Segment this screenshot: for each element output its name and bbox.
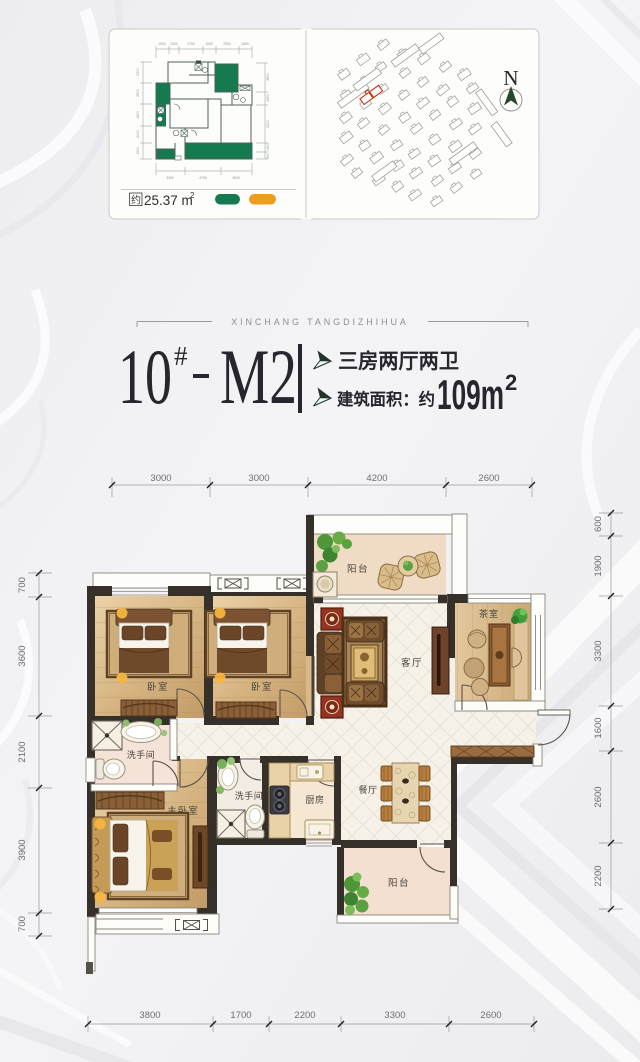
svg-text:2900: 2900 xyxy=(223,42,231,46)
svg-text:客厅: 客厅 xyxy=(401,657,423,669)
svg-text:3300: 3300 xyxy=(384,1010,405,1021)
svg-text:餐厅: 餐厅 xyxy=(358,784,377,795)
svg-text:1600: 1600 xyxy=(241,42,249,46)
svg-text:3300: 3300 xyxy=(166,176,174,180)
svg-text:1800: 1800 xyxy=(136,111,140,119)
svg-text:2: 2 xyxy=(190,191,195,200)
svg-text:2100: 2100 xyxy=(17,741,28,762)
svg-text:卧室: 卧室 xyxy=(147,681,169,693)
svg-text:700: 700 xyxy=(17,577,28,593)
svg-text:700: 700 xyxy=(17,916,28,932)
svg-text:洗手间: 洗手间 xyxy=(127,749,156,760)
svg-text:茶室: 茶室 xyxy=(479,608,499,619)
svg-text:1000: 1000 xyxy=(158,42,166,46)
svg-text:卧室: 卧室 xyxy=(251,681,273,693)
svg-text:1600: 1600 xyxy=(593,717,604,738)
svg-text:3000: 3000 xyxy=(150,473,171,484)
svg-text:2200: 2200 xyxy=(266,120,270,128)
svg-text:3000: 3000 xyxy=(248,473,269,484)
svg-text:10: 10 xyxy=(118,333,172,420)
svg-text:厨房: 厨房 xyxy=(305,794,324,805)
svg-text:约: 约 xyxy=(131,194,141,207)
svg-text:1500: 1500 xyxy=(136,147,140,155)
svg-text:600: 600 xyxy=(593,516,604,532)
svg-text:2600: 2600 xyxy=(480,1010,501,1021)
svg-text:1900: 1900 xyxy=(593,555,604,576)
svg-text:109m: 109m xyxy=(437,371,504,418)
svg-text:1000: 1000 xyxy=(170,42,178,46)
svg-text:1700: 1700 xyxy=(230,1010,251,1021)
svg-text:2: 2 xyxy=(505,370,517,395)
svg-text:阳台: 阳台 xyxy=(388,877,410,889)
svg-text:3600: 3600 xyxy=(17,645,28,666)
svg-text:2000: 2000 xyxy=(136,130,140,138)
svg-text:25.37 m: 25.37 m xyxy=(144,193,193,208)
svg-text:1400: 1400 xyxy=(266,143,270,151)
svg-text:2600: 2600 xyxy=(593,786,604,807)
svg-text:2200: 2200 xyxy=(294,1010,315,1021)
svg-text:3600: 3600 xyxy=(266,73,270,81)
svg-text:2200: 2200 xyxy=(593,865,604,886)
svg-text:洗手间: 洗手间 xyxy=(235,790,264,801)
svg-text:三房两厅两卫: 三房两厅两卫 xyxy=(338,349,459,373)
svg-text:4700: 4700 xyxy=(199,176,207,180)
svg-text:3900: 3900 xyxy=(232,176,240,180)
svg-text:#: # xyxy=(174,341,188,371)
svg-text:3800: 3800 xyxy=(139,1010,160,1021)
svg-text:阳台: 阳台 xyxy=(347,563,369,575)
svg-text:4200: 4200 xyxy=(366,473,387,484)
svg-text:建筑面积：约: 建筑面积：约 xyxy=(337,389,435,409)
svg-text:M2: M2 xyxy=(220,333,297,420)
svg-text:2700: 2700 xyxy=(187,42,195,46)
svg-text:3900: 3900 xyxy=(17,839,28,860)
svg-text:XINCHANG TANGDIZHIHUA: XINCHANG TANGDIZHIHUA xyxy=(231,317,409,327)
svg-text:1000: 1000 xyxy=(205,42,213,46)
svg-text:2500: 2500 xyxy=(136,89,140,97)
svg-text:2300: 2300 xyxy=(136,68,140,76)
svg-text:2400: 2400 xyxy=(266,94,270,102)
svg-text:3300: 3300 xyxy=(593,640,604,661)
svg-text:2600: 2600 xyxy=(478,473,499,484)
svg-text:900: 900 xyxy=(266,153,270,159)
